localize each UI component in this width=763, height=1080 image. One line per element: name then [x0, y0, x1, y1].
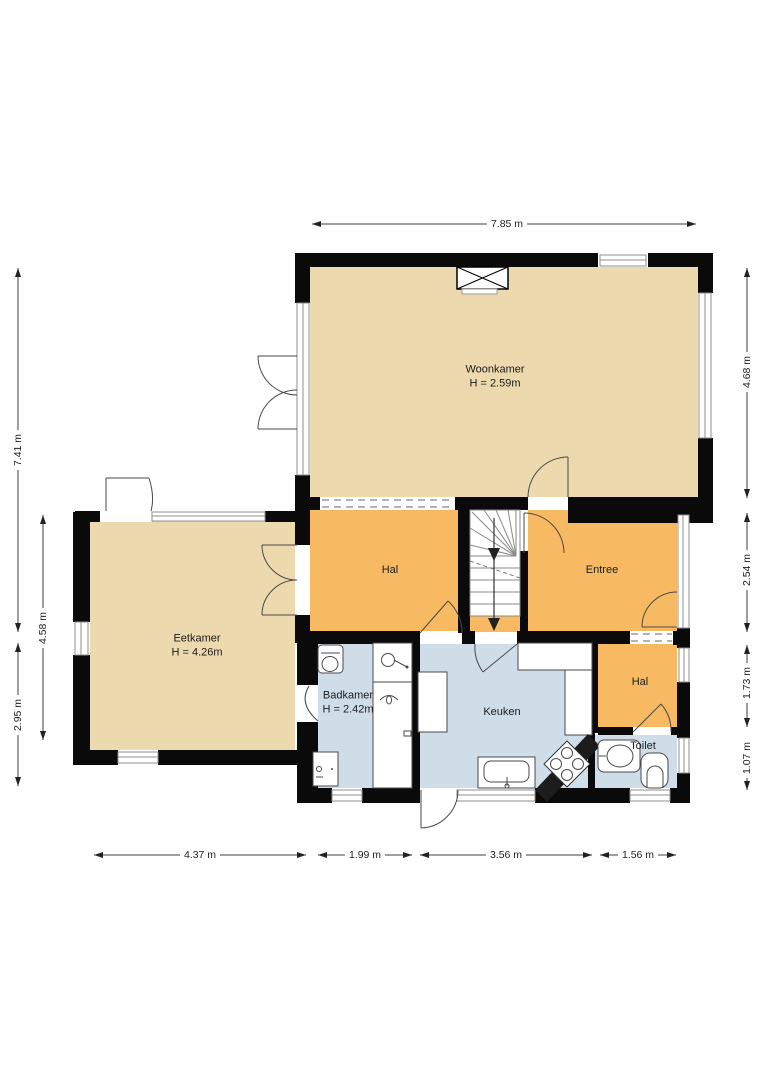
- bathroom-cabinet: [373, 682, 412, 788]
- toilet-fixture-badkamer: [318, 645, 343, 673]
- room-name: Keuken: [483, 705, 520, 719]
- dimension-top-width: 7.85 m: [487, 218, 527, 230]
- dimension-right-1: 4.68 m: [741, 352, 753, 392]
- dimension-right-4: 1.07 m: [741, 738, 753, 778]
- room-label-toilet: Toilet: [630, 739, 656, 753]
- room-label-woonkamer: Woonkamer H = 2.59m: [465, 363, 524, 392]
- dimension-left-3: 2.95 m: [12, 695, 24, 735]
- room-label-hal2: Hal: [632, 675, 649, 689]
- room-label-entree: Entree: [586, 563, 618, 577]
- dimension-bottom-2: 1.99 m: [345, 849, 385, 861]
- room-name: Entree: [586, 563, 618, 577]
- dimension-right-3: 1.73 m: [741, 663, 753, 703]
- sink-fixture: [478, 757, 535, 788]
- dimension-bottom-4: 1.56 m: [618, 849, 658, 861]
- dimension-left-2: 4.58 m: [37, 608, 49, 648]
- room-label-eetkamer: Eetkamer H = 4.26m: [171, 632, 222, 661]
- room-height: H = 2.42m: [322, 703, 373, 717]
- dimension-bottom-3: 3.56 m: [486, 849, 526, 861]
- room-name: Badkamer: [322, 689, 373, 703]
- floorplan-drawing: [0, 0, 763, 1080]
- room-name: Woonkamer: [465, 363, 524, 377]
- dimension-left-1: 7.41 m: [12, 430, 24, 470]
- door-eetkamer-exterior: [106, 478, 153, 511]
- staircase: [470, 510, 520, 631]
- room-name: Hal: [382, 563, 399, 577]
- dimension-bottom-1: 4.37 m: [180, 849, 220, 861]
- room-name: Eetkamer: [171, 632, 222, 646]
- dimension-right-2: 2.54 m: [741, 550, 753, 590]
- french-doors-woonkamer: [258, 356, 297, 429]
- room-label-badkamer: Badkamer H = 2.42m: [322, 689, 373, 718]
- shower-fixture: [373, 643, 412, 682]
- toilet-fixture-toilet: [641, 753, 668, 788]
- room-name: Toilet: [630, 739, 656, 753]
- washbasin-fixture-badkamer: [313, 752, 338, 786]
- room-label-hal: Hal: [382, 563, 399, 577]
- room-height: H = 4.26m: [171, 646, 222, 660]
- room-label-keuken: Keuken: [483, 705, 520, 719]
- room-height: H = 2.59m: [465, 377, 524, 391]
- floorplan-page: Woonkamer H = 2.59m Eetkamer H = 4.26m H…: [0, 0, 763, 1080]
- room-name: Hal: [632, 675, 649, 689]
